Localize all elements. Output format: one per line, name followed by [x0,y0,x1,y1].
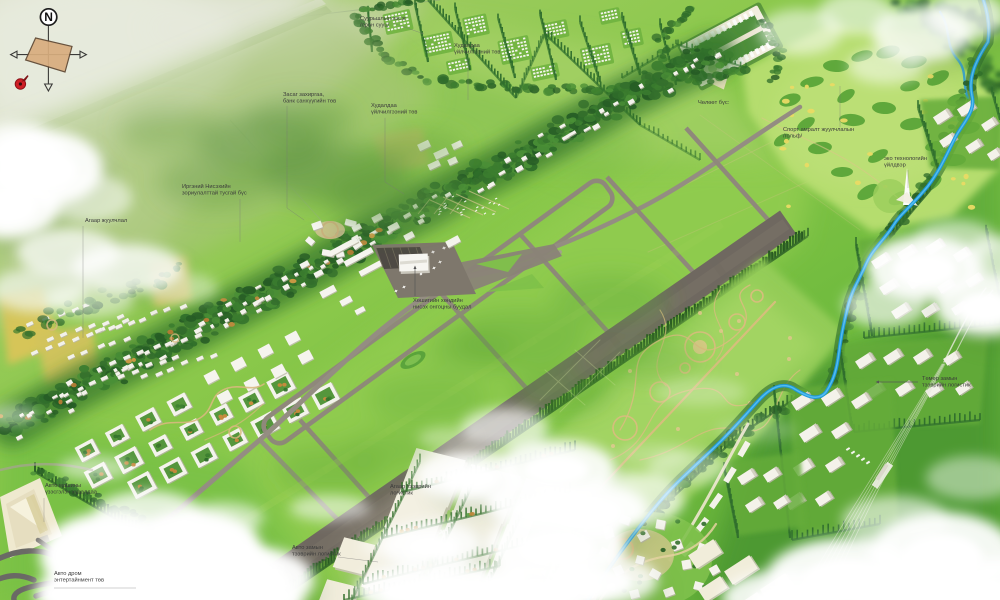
svg-text:Иргэний Нисэхийн: Иргэний Нисэхийн [182,183,231,190]
svg-text:энтертайнмент төв: энтертайнмент төв [54,577,104,584]
svg-text:Спорт амралт жуулчлалын: Спорт амралт жуулчлалын [783,127,854,133]
svg-text:/гольф/: /гольф/ [783,134,803,140]
svg-text:эко технологийн: эко технологийн [884,155,927,162]
svg-text:үйлчилгээний төв: үйлчилгээний төв [371,109,417,116]
svg-text:үзэсгэлэн худалдаа: үзэсгэлэн худалдаа [45,490,98,496]
svg-text:нисэх онгоцны буудал: нисэх онгоцны буудал [413,305,471,311]
svg-text:Худалдаа: Худалдаа [371,103,398,109]
svg-text:Худалдаа: Худалдаа [454,43,481,49]
svg-text:Чөлөөт бүс:: Чөлөөт бүс: [698,100,730,106]
svg-text:Агаар жуулчлал: Агаар жуулчлал [85,218,127,224]
svg-text:үйлчилгээний төв: үйлчилгээний төв [454,49,500,56]
svg-text:Агаар тээврийн: Агаар тээврийн [390,483,431,490]
svg-text:Хөшигийн хөндийн: Хөшигийн хөндийн [413,297,463,304]
svg-text:/орон сууц/: /орон сууц/ [360,23,390,29]
svg-text:Авто замын: Авто замын [292,545,323,551]
svg-text:логистик: логистик [390,491,413,497]
svg-text:Авто дром: Авто дром [54,571,82,577]
svg-text:N: N [44,10,53,24]
svg-text:тээврийн логистик: тээврийн логистик [292,551,341,558]
svg-text:Суурьшлын хэсэг: Суурьшлын хэсэг [360,16,406,22]
svg-text:үйлдвэр: үйлдвэр [884,162,906,169]
svg-text:Засаг захиргаа,: Засаг захиргаа, [283,92,324,98]
svg-text:зориулалттай тусгай бүс: зориулалттай тусгай бүс [182,190,247,197]
svg-text:банк санхүүгийн төв: банк санхүүгийн төв [283,98,336,105]
svg-text:Авто машины: Авто машины [45,483,81,489]
svg-text:Төмөр замын: Төмөр замын [922,376,957,382]
svg-text:тээврийн логистик: тээврийн логистик [922,382,971,389]
